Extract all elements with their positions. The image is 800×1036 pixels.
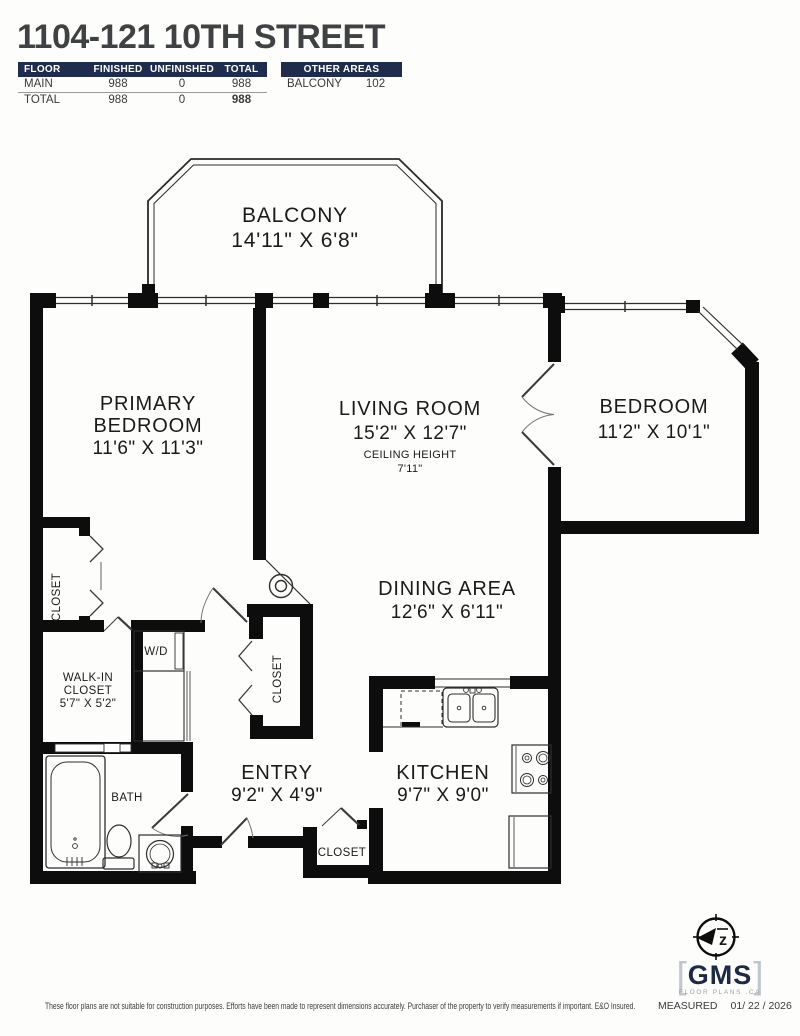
floor-plan-page: 1104-121 10TH STREET FLOOR FINISHED UNFI…: [0, 0, 800, 1036]
living-room-label: LIVING ROOM: [339, 398, 481, 420]
logo-bracket-left: [: [676, 959, 686, 992]
compass-icon: z: [693, 914, 739, 960]
entry-label: ENTRY: [241, 762, 312, 784]
logo-subtitle: FLOOR PLANS .CA: [664, 989, 776, 996]
primary-bedroom-label-1: PRIMARY: [100, 393, 196, 415]
french-doors: [522, 364, 554, 465]
logo-bracket-right: ]: [753, 959, 763, 992]
ceiling-height-value: 7'11": [397, 463, 422, 475]
bath-sink: [139, 835, 181, 872]
primary-bedroom-door: [201, 588, 247, 623]
primary-closet-label: CLOSET: [51, 573, 63, 621]
floor-plan-drawing: BALCONY 14'11" X 6'8" PRIMARY BEDROOM 11…: [0, 0, 800, 1036]
stove: [512, 745, 551, 793]
bath-label: BATH: [111, 792, 142, 804]
hall-closet-bifold: [239, 641, 252, 715]
bath-shelf: [55, 744, 131, 753]
kitchen-passthrough: [435, 679, 510, 687]
measured-label: MEASURED: [658, 1000, 718, 1012]
gms-logo: [ GMS ] FLOOR PLANS .CA: [664, 959, 776, 996]
balcony-label: BALCONY: [242, 204, 348, 227]
washer-dryer-label: W/D: [144, 646, 168, 658]
hot-water-tank: [266, 560, 310, 604]
measured-date: 01/ 22 / 2026: [731, 1000, 792, 1012]
balcony-dims: 14'11" X 6'8": [231, 229, 359, 252]
dining-area-dims: 12'6" X 6'11": [391, 602, 503, 623]
primary-bedroom-label-2: BEDROOM: [94, 415, 203, 437]
dishwasher: [383, 691, 443, 727]
disclaimer-text: These floor plans are not suitable for c…: [45, 1001, 635, 1011]
walk-in-closet-label-2: CLOSET: [64, 685, 112, 697]
kitchen-dims: 9'7" X 9'0": [397, 785, 489, 806]
bathtub: [46, 756, 105, 868]
walk-in-closet-bifold: [104, 617, 132, 631]
fridge: [509, 816, 551, 868]
primary-closet-bifold: [90, 536, 103, 616]
compass-letter: z: [719, 932, 727, 949]
kitchen-sink: [443, 687, 498, 727]
hall-closet-label: CLOSET: [272, 655, 284, 703]
walk-in-closet-label-1: WALK-IN: [63, 672, 113, 684]
entry-closet-label: CLOSET: [318, 847, 366, 859]
ceiling-height-label: CEILING HEIGHT: [364, 449, 457, 461]
dining-area-label: DINING AREA: [378, 578, 516, 600]
measured-line: MEASURED 01/ 22 / 2026: [658, 1000, 792, 1012]
entry-closet-bifold: [322, 808, 359, 826]
bedroom-dims: 11'2" X 10'1": [598, 422, 710, 443]
windows: [56, 295, 743, 350]
entry-dims: 9'2" X 4'9": [231, 785, 323, 806]
walk-in-closet-dims: 5'7" X 5'2": [60, 698, 117, 710]
bedroom-corner-wall: [737, 348, 753, 365]
kitchen-label: KITCHEN: [396, 762, 489, 784]
toilet: [103, 825, 134, 869]
living-room-dims: 15'2" X 12'7": [353, 423, 467, 444]
logo-text: GMS: [687, 962, 754, 989]
primary-bedroom-dims: 11'6" X 11'3": [92, 438, 203, 459]
bedroom-label: BEDROOM: [600, 396, 709, 418]
